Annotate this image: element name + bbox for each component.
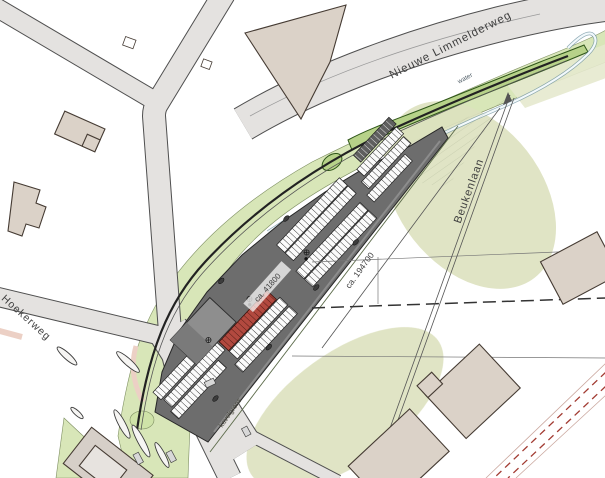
building-left	[8, 182, 46, 236]
building-topleft	[55, 111, 105, 152]
water-label: water	[456, 71, 475, 86]
bike-path-strips	[0, 330, 143, 402]
road-topleft	[0, 6, 150, 98]
site-plan-drawing: Nieuwe Limmelderweg Beukenlaan Hoekerweg…	[0, 0, 605, 478]
site-plan-canvas: Nieuwe Limmelderweg Beukenlaan Hoekerweg…	[0, 0, 605, 478]
small-structure	[201, 59, 212, 70]
small-structure	[123, 37, 136, 49]
